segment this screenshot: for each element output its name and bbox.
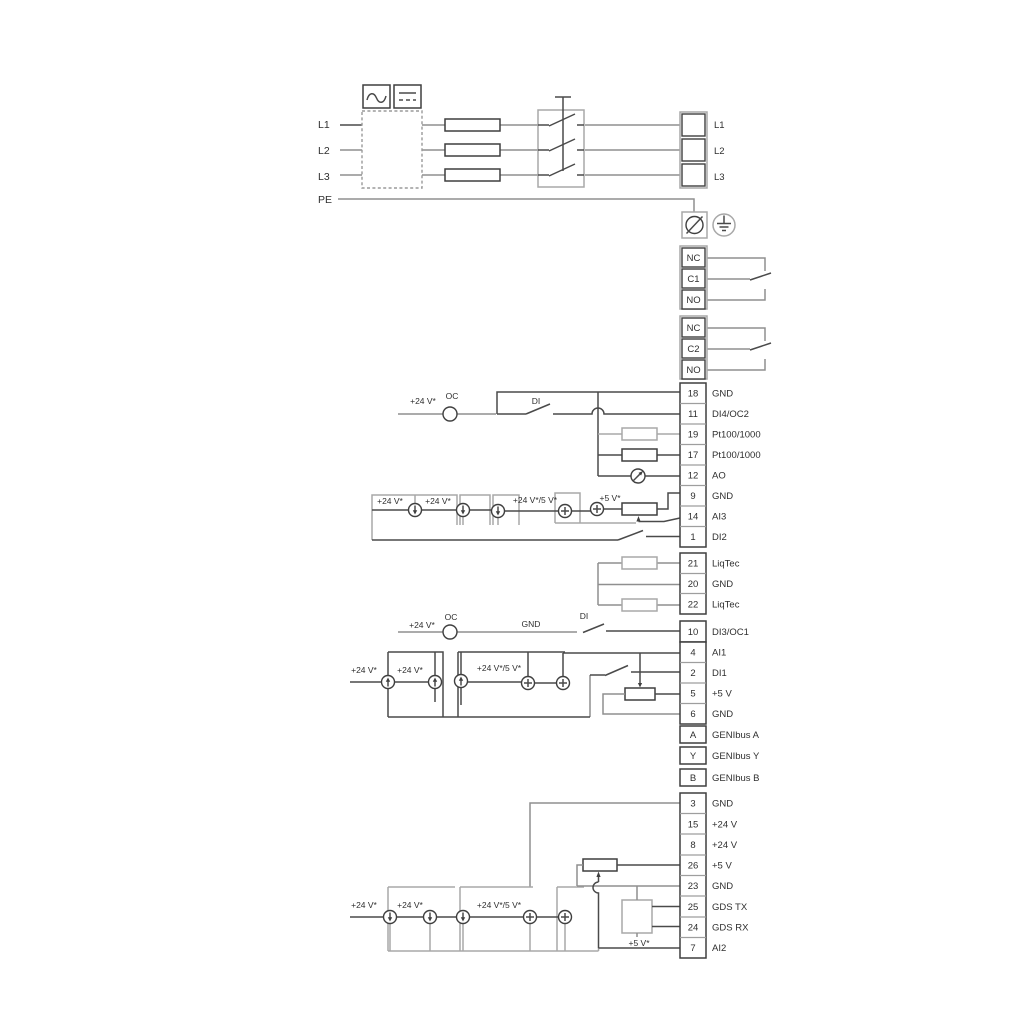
di4-pt100-ao-section: +24 V* OC DI (398, 391, 680, 483)
terminal-number: 9 (690, 491, 695, 502)
terminal-label: GENIbus Y (712, 751, 760, 762)
terminal-label: AI1 (712, 648, 726, 659)
v24-5-label-2: +24 V*/5 V* (477, 663, 522, 673)
di4-box (497, 392, 680, 414)
wiring-diagram-page: L1 L2 L3 PE L1 L2 L3 NC C1 NO (0, 0, 1024, 1024)
terminal-label: LiqTec (712, 559, 740, 570)
mains-section: L1 L2 L3 PE L1 L2 L3 (318, 85, 735, 238)
sensor-box2-ai1 (458, 652, 565, 717)
bottom-wire-b (388, 948, 599, 951)
v5-label-2: +5 V* (628, 938, 650, 948)
ai3-wire (639, 518, 681, 522)
pot-wiper-arrow-ai3 (636, 516, 640, 522)
terminal-label: GND (712, 579, 733, 590)
relay2-c-label: C2 (687, 344, 699, 355)
v24-label-7: +24 V* (351, 900, 377, 910)
v24-label-4: +24 V* (409, 620, 435, 630)
wire-l2-lead (340, 150, 362, 175)
terminal-number: 22 (688, 600, 699, 611)
label-l3-in: L3 (318, 171, 330, 183)
terminal-label: +24 V (712, 840, 738, 851)
relay2-section: NC C2 NO (680, 316, 771, 379)
v24-label-6: +24 V* (397, 665, 423, 675)
terminal-number: 14 (688, 512, 699, 523)
fuse-l1 (445, 119, 500, 131)
v24-label-3: +24 V* (425, 496, 451, 506)
terminal-label: AI3 (712, 512, 726, 523)
di-label-2: DI (580, 611, 589, 621)
terminal-label: GND (712, 881, 733, 892)
relay2-no-label: NO (686, 365, 700, 376)
relay2-nc-label: NC (687, 323, 701, 334)
earth-ground-icon (717, 216, 731, 231)
label-l3-out: L3 (714, 172, 725, 183)
fuse-l2 (445, 144, 500, 156)
dc-symbol-box (394, 85, 421, 108)
oc-label-1: OC (446, 391, 459, 401)
terminal-number: 21 (688, 559, 699, 570)
terminal-label: GDS RX (712, 923, 749, 934)
terminal-number: 12 (688, 471, 699, 482)
sensor-group1-box-b (388, 887, 455, 951)
terminal-number: 3 (690, 799, 695, 810)
label-pe-in: PE (318, 194, 332, 206)
terminal-number: 7 (690, 943, 695, 954)
liqtec21-sensor (622, 557, 657, 569)
terminal-label: GDS TX (712, 902, 748, 913)
setpoint-pot-bottom (583, 859, 617, 871)
terminal-number: 18 (688, 389, 699, 400)
pot-to-gnd23-bracket (577, 865, 583, 886)
terminal-label: DI1 (712, 668, 727, 679)
di3-terminal-strip: 10 DI3/OC1 (680, 621, 749, 642)
terminal-number: 17 (688, 450, 699, 461)
terminal-number: 5 (690, 689, 695, 700)
relay1-no-label: NO (686, 295, 700, 306)
label-l2-out: L2 (714, 146, 725, 157)
terminal-l2 (682, 139, 705, 161)
v24-label-5: +24 V* (351, 665, 377, 675)
di-label-1: DI (532, 396, 541, 406)
terminal-label: Pt100/1000 (712, 430, 761, 441)
relay1-contact-blade (750, 273, 771, 280)
terminal-number: 23 (688, 881, 699, 892)
terminal-number: B (690, 773, 696, 784)
relay1-section: NC C1 NO (680, 246, 771, 309)
di4-wire-hop (553, 408, 680, 414)
terminal-number: 20 (688, 579, 699, 590)
terminal-label: AO (712, 471, 726, 482)
main-switch-pole2 (538, 139, 584, 151)
v24-label-2: +24 V* (377, 496, 403, 506)
wire-pe (338, 199, 694, 212)
terminal-number: 15 (688, 820, 699, 831)
pt100-17-resistor (622, 449, 657, 461)
pt100-19-resistor (622, 428, 657, 440)
gnd-label-inline: GND (522, 619, 541, 629)
main-switch-handle (555, 97, 571, 171)
terminal-number: Y (690, 751, 697, 762)
di4-switch (497, 404, 550, 414)
terminal-number: 4 (690, 648, 695, 659)
label-l1-in: L1 (318, 119, 330, 131)
terminal-number: 19 (688, 430, 699, 441)
bottom-terminal-strip: 3 15 8 26 23 25 24 7 GND +24 V +24 V +5 … (680, 793, 749, 958)
ai3-sensor-section: +24 V* +24 V* +24 V*/5 V* +5 V* (372, 493, 680, 540)
emc-filter-box (362, 111, 422, 188)
v24-label-1: +24 V* (410, 396, 436, 406)
wiring-diagram: L1 L2 L3 PE L1 L2 L3 NC C1 NO (0, 0, 1024, 1024)
setpoint-pot-ai3 (622, 503, 657, 515)
relay1-c-label: C1 (687, 274, 699, 285)
io-terminal-strip: 18 11 19 17 12 9 14 1 GND DI4/OC2 Pt100/… (680, 383, 761, 547)
terminal-label: GND (712, 709, 733, 720)
setpoint-pot-ai1 (625, 688, 655, 700)
relay1-nc-wire (707, 258, 765, 271)
terminal-label: GND (712, 799, 733, 810)
di3-oc1-section: +24 V* OC GND DI (398, 611, 680, 639)
terminal-label: GENIbus B (712, 773, 760, 784)
gnd3-wire (530, 803, 680, 887)
terminal-l3 (682, 164, 705, 186)
terminal-l1 (682, 114, 705, 136)
terminal-label: +5 V (712, 689, 732, 700)
main-switch-pole3 (538, 164, 584, 176)
v24-5-label-3: +24 V*/5 V* (477, 900, 522, 910)
stubs-b (390, 924, 565, 952)
terminal-label: DI4/OC2 (712, 409, 749, 420)
liqtec22-sensor (622, 599, 657, 611)
terminal-label: +5 V (712, 861, 732, 872)
main-switch-pole1 (538, 114, 584, 126)
terminal-label: DI2 (712, 532, 727, 543)
oc1-circle-icon (443, 625, 457, 639)
liqtec-terminal-strip: 21 20 22 LiqTec GND LiqTec (680, 553, 740, 614)
gds-sensor-section: +24 V* +24 V* +24 V*/5 V* +5 V* (350, 803, 680, 951)
ai1-sensor-section: +24 V* +24 V* +24 V*/5 V* (350, 652, 680, 717)
ai1-wiper-arrow (638, 683, 642, 688)
gds-sensor-box (622, 900, 652, 933)
terminal-label: +24 V (712, 820, 738, 831)
v24-5-label-1: +24 V*/5 V* (513, 495, 558, 505)
terminal-number: A (690, 730, 697, 741)
genibus-terminal-strip: A Y B GENIbus A GENIbus Y GENIbus B (680, 726, 760, 786)
label-l2-in: L2 (318, 145, 330, 157)
ai2-wiper-wire (593, 877, 599, 948)
terminal-number: 6 (690, 709, 695, 720)
terminal-label: GND (712, 389, 733, 400)
terminal-label: AI2 (712, 943, 726, 954)
terminal-label: LiqTec (712, 600, 740, 611)
relay1-nc-label: NC (687, 253, 701, 264)
stub-c4-ai1 (528, 652, 563, 677)
terminal-label: GND (712, 491, 733, 502)
relay2-nc-wire (707, 328, 765, 341)
terminal-number: 26 (688, 861, 699, 872)
terminal-number: 25 (688, 902, 699, 913)
label-l1-out: L1 (714, 120, 725, 131)
relay2-no-wire (707, 359, 765, 370)
terminal-number: 10 (688, 627, 699, 638)
relay2-contact-blade (750, 343, 771, 350)
liqtec-section (598, 557, 680, 611)
terminal-number: 11 (688, 409, 698, 420)
ai1-terminal-strip: 4 2 5 6 AI1 DI1 +5 V GND (680, 642, 733, 724)
relay1-no-wire (707, 289, 765, 300)
pot-to-gnd9-wire (657, 493, 680, 509)
pot-wiper-arrow-bottom (596, 872, 600, 878)
v24-label-8: +24 V* (397, 900, 423, 910)
terminal-number: 1 (690, 532, 695, 543)
terminal-label: Pt100/1000 (712, 450, 761, 461)
di3-switch (583, 624, 604, 633)
terminal-number: 24 (688, 923, 699, 934)
v5-label-1: +5 V* (599, 493, 621, 503)
sensor-group2-box-b (460, 887, 533, 951)
oc2-circle-icon (443, 407, 457, 421)
di1-switch (590, 666, 628, 676)
oc-label-2: OC (445, 612, 458, 622)
fuse-l3 (445, 169, 500, 181)
terminal-number: 2 (690, 668, 695, 679)
terminal-number: 8 (690, 840, 695, 851)
di2-switch (618, 531, 643, 541)
terminal-label: GENIbus A (712, 730, 760, 741)
terminal-label: DI3/OC1 (712, 627, 749, 638)
